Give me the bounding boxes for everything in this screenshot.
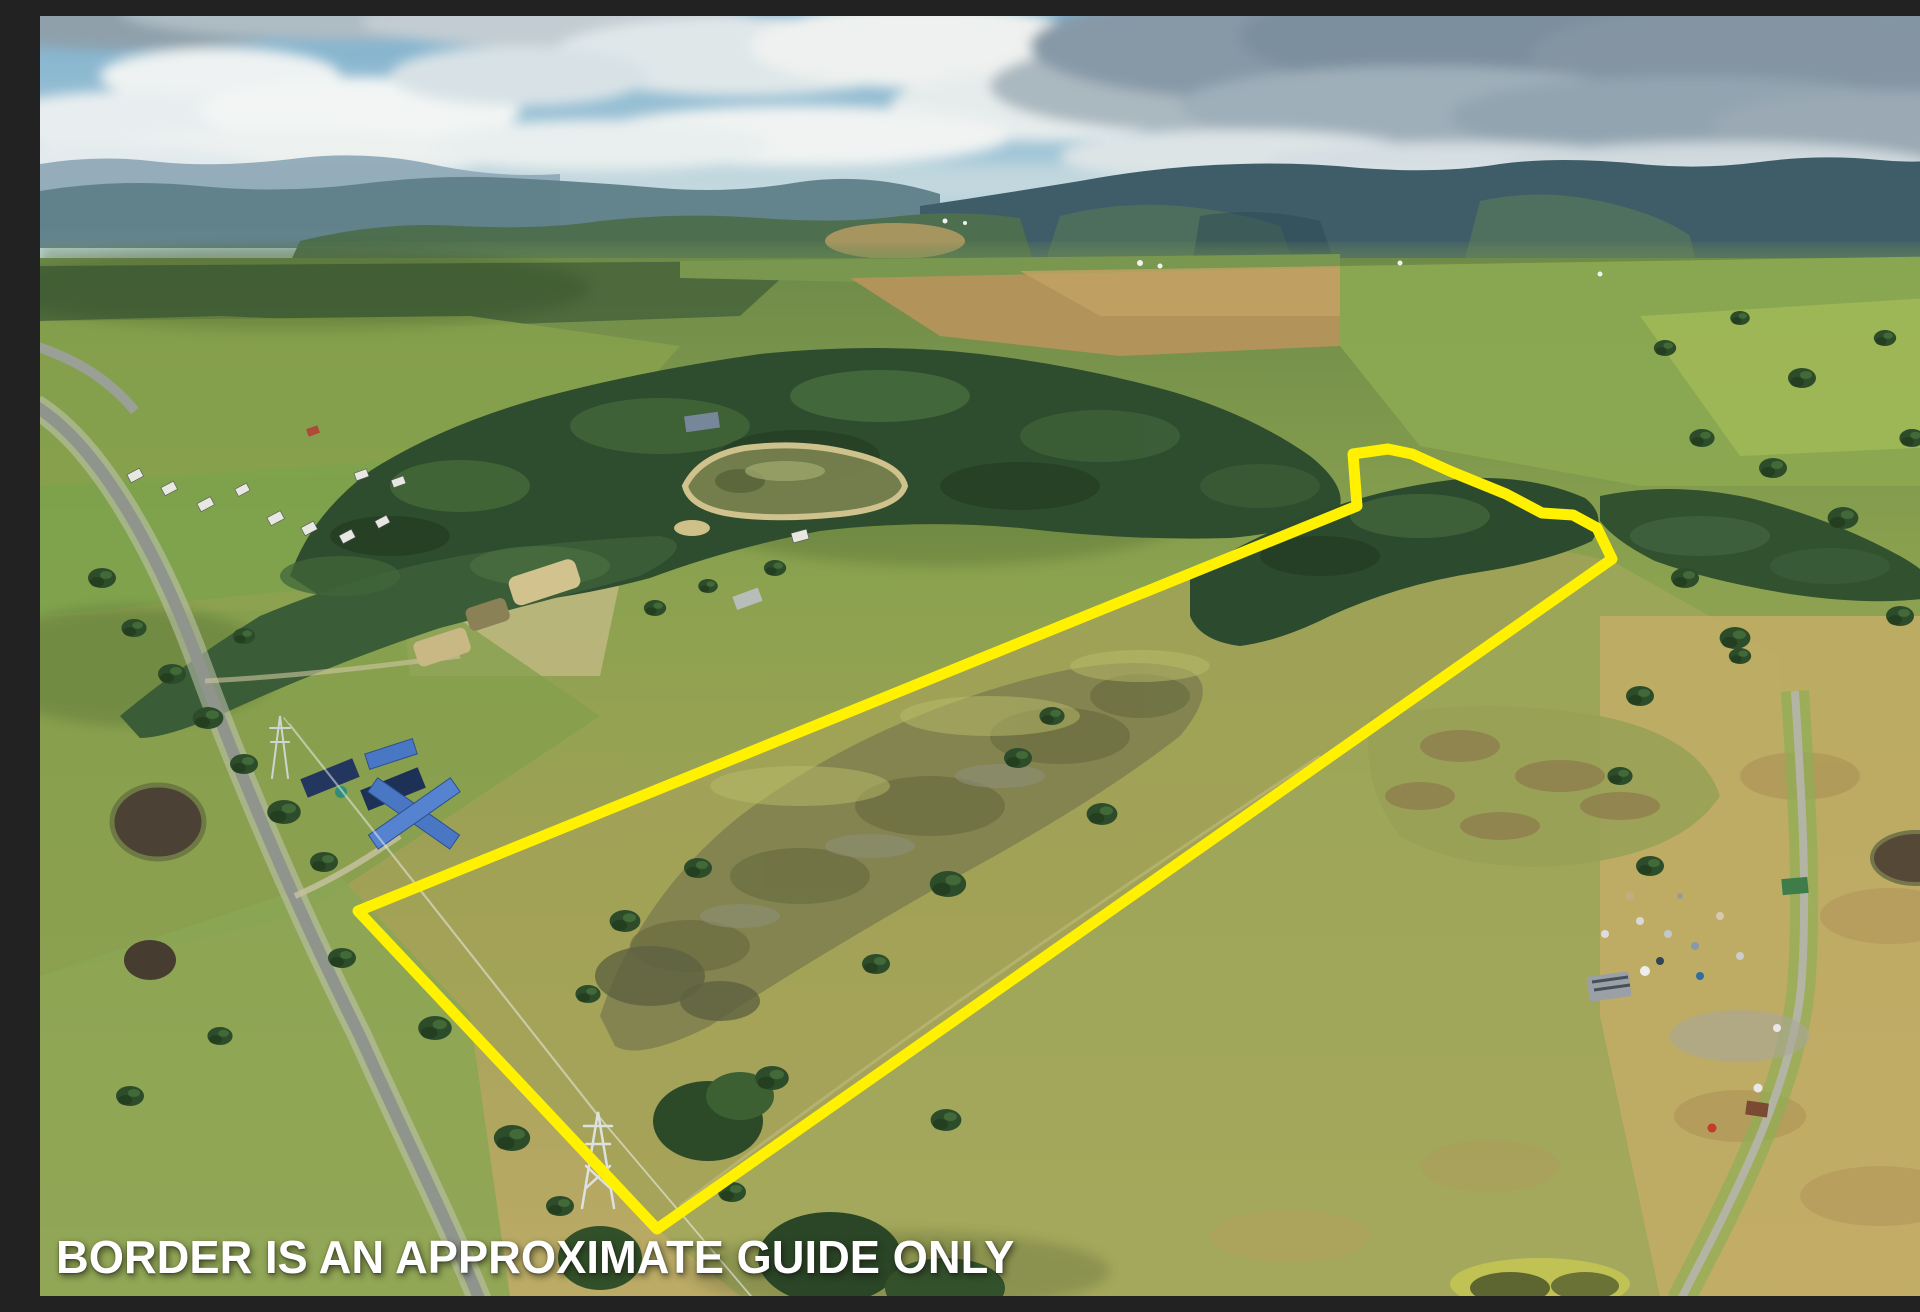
aerial-photo-canvas (40, 16, 1920, 1296)
red-tractor (1708, 1124, 1717, 1133)
aerial-property-photo: BORDER IS AN APPROXIMATE GUIDE ONLY (40, 16, 1920, 1296)
disclaimer-caption: BORDER IS AN APPROXIMATE GUIDE ONLY (56, 1232, 1014, 1283)
white-vehicle (1754, 1084, 1763, 1093)
